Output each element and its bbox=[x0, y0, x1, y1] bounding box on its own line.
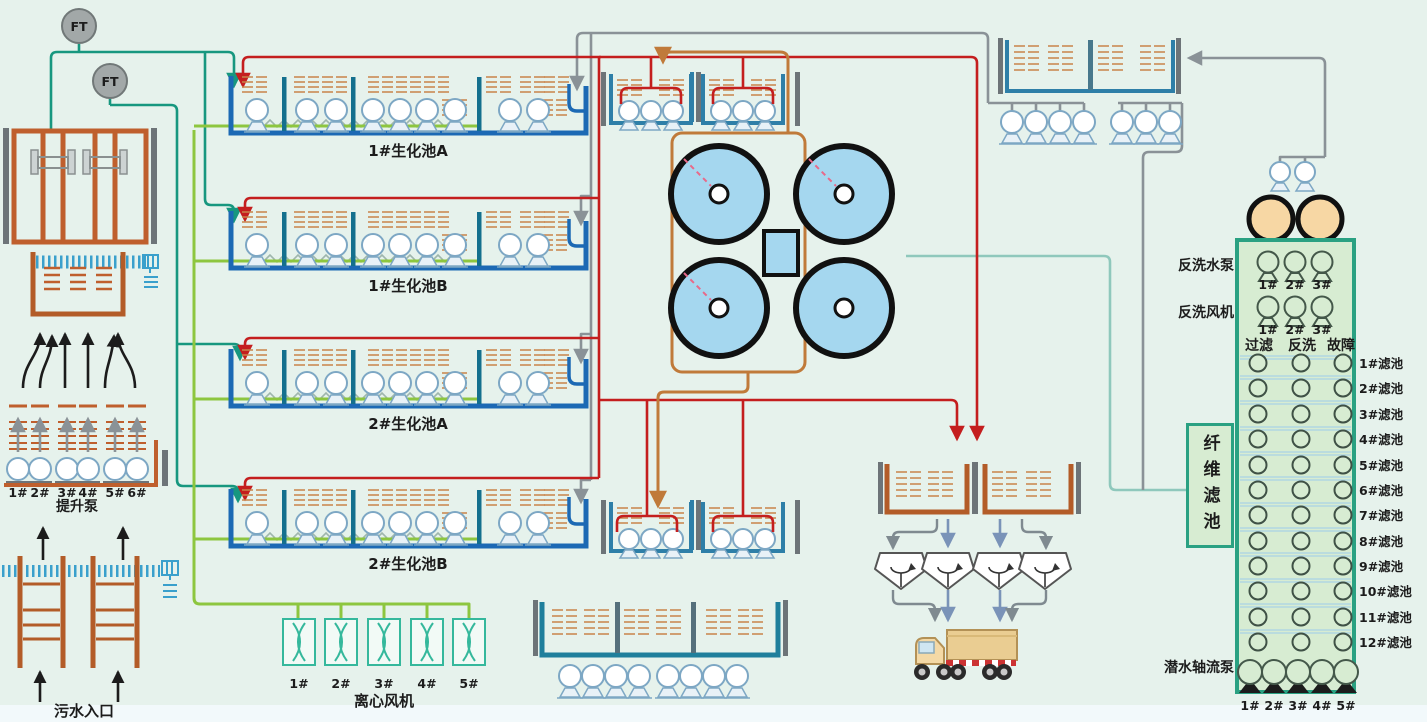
filter-status-light[interactable] bbox=[1293, 431, 1310, 448]
column-header-backwash: 反洗 bbox=[1288, 337, 1316, 354]
backwash-pumps-label: 反洗水泵 bbox=[1178, 257, 1234, 274]
ft-sensor-2-label: FT bbox=[101, 74, 119, 89]
filter-row-11-label: 11#滤池 bbox=[1359, 610, 1412, 625]
filter-status-light[interactable] bbox=[1250, 634, 1267, 651]
filter-status-light[interactable] bbox=[1250, 406, 1267, 423]
flow-arrows-up bbox=[23, 334, 135, 388]
screen-drive-2 bbox=[83, 150, 127, 174]
bio-tank-1b-label: 1#生化池B bbox=[368, 277, 447, 295]
filter-row-8-label: 8#滤池 bbox=[1359, 534, 1404, 549]
dewatering-hoppers[interactable] bbox=[875, 553, 1071, 589]
plant-diagram: FT FT bbox=[0, 0, 1427, 722]
filter-status-light[interactable] bbox=[1293, 355, 1310, 372]
axial-pump-2-label: 2# bbox=[1264, 698, 1283, 713]
ft-sensor-1-label: FT bbox=[70, 19, 88, 34]
bio-tank-1a[interactable] bbox=[194, 76, 586, 133]
filter-row-9 bbox=[1250, 558, 1352, 575]
blower-4[interactable] bbox=[411, 619, 443, 665]
lift-pump-5-label: 5# bbox=[105, 485, 124, 500]
blower-3[interactable] bbox=[368, 619, 400, 665]
filter-row-4-label: 4#滤池 bbox=[1359, 432, 1404, 447]
filter-status-light[interactable] bbox=[1250, 355, 1267, 372]
axial-pump-5-label: 5# bbox=[1336, 698, 1355, 713]
filter-row-5 bbox=[1250, 457, 1352, 474]
filter-row-12 bbox=[1250, 634, 1352, 651]
filter-status-light[interactable] bbox=[1335, 355, 1352, 372]
filter-row-10 bbox=[1250, 583, 1352, 600]
filter-row-11 bbox=[1250, 609, 1352, 626]
filter-status-light[interactable] bbox=[1335, 431, 1352, 448]
filter-status-light[interactable] bbox=[1335, 507, 1352, 524]
column-header-fault: 故障 bbox=[1327, 337, 1355, 354]
lift-pump-2-label: 2# bbox=[30, 485, 49, 500]
filter-status-light[interactable] bbox=[1250, 558, 1267, 575]
filter-row-6 bbox=[1250, 482, 1352, 499]
filter-row-1-label: 1#滤池 bbox=[1359, 356, 1404, 371]
axial-pump-3-label: 3# bbox=[1288, 698, 1307, 713]
filter-row-5-label: 5#滤池 bbox=[1359, 458, 1404, 473]
lift-pump-station-label: 提升泵 bbox=[56, 498, 98, 515]
distribution-wells-bottom bbox=[601, 500, 800, 558]
ft-sensor-2[interactable]: FT bbox=[93, 64, 127, 98]
filter-status-light[interactable] bbox=[1335, 634, 1352, 651]
blower-2[interactable] bbox=[325, 619, 357, 665]
filter-row-9-label: 9#滤池 bbox=[1359, 559, 1404, 574]
coarse-screen-structure bbox=[3, 128, 158, 388]
filter-row-3 bbox=[1250, 406, 1352, 423]
hopper-discharge-lines bbox=[893, 590, 1046, 620]
backwash-fan-3-label: 3# bbox=[1312, 322, 1331, 337]
filter-row-2 bbox=[1250, 380, 1352, 397]
backwash-pump-3-label: 3# bbox=[1312, 277, 1331, 292]
filter-status-light[interactable] bbox=[1250, 431, 1267, 448]
filter-status-light[interactable] bbox=[1293, 482, 1310, 499]
distribution-chamber bbox=[764, 231, 798, 275]
filter-status-light[interactable] bbox=[1335, 406, 1352, 423]
lift-pump-1-label: 1# bbox=[8, 485, 27, 500]
blower-5-label: 5# bbox=[459, 676, 478, 691]
filter-status-light[interactable] bbox=[1250, 583, 1267, 600]
filter-status-light[interactable] bbox=[1293, 457, 1310, 474]
blower-2-label: 2# bbox=[331, 676, 350, 691]
bio-tank-2b[interactable] bbox=[194, 489, 586, 546]
equalization-tank bbox=[533, 600, 788, 698]
blower-3-label: 3# bbox=[374, 676, 393, 691]
axial-pumps[interactable] bbox=[1238, 660, 1358, 693]
filter-row-6-label: 6#滤池 bbox=[1359, 483, 1404, 498]
filter-row-1 bbox=[1250, 355, 1352, 372]
lift-pump-3-label: 3# bbox=[57, 485, 76, 500]
blower-5[interactable] bbox=[453, 619, 485, 665]
axial-pump-4-label: 4# bbox=[1312, 698, 1331, 713]
backwash-fans-label: 反洗风机 bbox=[1178, 304, 1234, 321]
distribution-wells-top bbox=[601, 72, 800, 130]
bio-tank-1b[interactable] bbox=[194, 211, 586, 268]
filter-status-light[interactable] bbox=[1250, 380, 1267, 397]
filter-status-light[interactable] bbox=[1293, 406, 1310, 423]
filter-status-light[interactable] bbox=[1293, 583, 1310, 600]
lift-pump-station[interactable]: 1# 2# 3# 4# 5# 6# 提升泵 bbox=[4, 406, 168, 515]
filter-status-light[interactable] bbox=[1335, 558, 1352, 575]
clarifier-4[interactable] bbox=[796, 260, 892, 356]
filter-status-light[interactable] bbox=[1250, 609, 1267, 626]
blower-1-label: 1# bbox=[289, 676, 308, 691]
backwash-tank-1[interactable] bbox=[1249, 197, 1293, 241]
axial-pump-1-label: 1# bbox=[1240, 698, 1259, 713]
backwash-pump-2-label: 2# bbox=[1285, 277, 1304, 292]
backwash-supply bbox=[1249, 162, 1342, 241]
bottom-strip bbox=[0, 705, 1427, 722]
truck-window bbox=[919, 642, 934, 653]
inlet-screens: 污水入口 bbox=[2, 528, 178, 720]
filter-status-light[interactable] bbox=[1293, 507, 1310, 524]
bio-tank-2a[interactable] bbox=[194, 349, 586, 406]
clarifier-1[interactable] bbox=[671, 146, 767, 242]
filter-row-3-label: 3#滤池 bbox=[1359, 407, 1404, 422]
backwash-tank-2[interactable] bbox=[1298, 197, 1342, 241]
bio-tank-1a-label: 1#生化池A bbox=[368, 142, 448, 160]
blowers-label: 离心风机 bbox=[354, 692, 414, 710]
fiber-filter-label: 纤维滤池 bbox=[1186, 423, 1234, 548]
sludge-tanks bbox=[878, 441, 1081, 514]
sewage-inlet-label: 污水入口 bbox=[54, 702, 114, 720]
axial-pumps-label: 潜水轴流泵 bbox=[1164, 659, 1234, 676]
blower-4-label: 4# bbox=[417, 676, 436, 691]
filter-status-light[interactable] bbox=[1335, 583, 1352, 600]
filter-row-8 bbox=[1250, 533, 1352, 550]
filter-row-4 bbox=[1250, 431, 1352, 448]
filter-row-2-label: 2#滤池 bbox=[1359, 381, 1404, 396]
filter-status-light[interactable] bbox=[1335, 609, 1352, 626]
hopper-feed-lines bbox=[893, 519, 1046, 548]
equalization-tank-pumps[interactable] bbox=[557, 665, 750, 698]
column-header-filter: 过滤 bbox=[1245, 337, 1273, 354]
filter-status-light[interactable] bbox=[1293, 533, 1310, 550]
bio-tank-2a-label: 2#生化池A bbox=[368, 415, 448, 433]
filter-status-light[interactable] bbox=[1250, 482, 1267, 499]
ft-sensor-1[interactable]: FT bbox=[62, 9, 96, 43]
contact-tank-pumps[interactable] bbox=[999, 111, 1183, 144]
centrifugal-blowers: 1# 2# 3# 4# 5# 离心风机 bbox=[283, 619, 485, 710]
blower-1[interactable] bbox=[283, 619, 315, 665]
lift-pump-4-label: 4# bbox=[78, 485, 97, 500]
filter-status-light[interactable] bbox=[1335, 457, 1352, 474]
backwash-pump-1-label: 1# bbox=[1258, 277, 1277, 292]
filter-status-light[interactable] bbox=[1250, 533, 1267, 550]
filter-status-light[interactable] bbox=[1250, 457, 1267, 474]
filter-row-7 bbox=[1250, 507, 1352, 524]
filter-status-light[interactable] bbox=[1293, 609, 1310, 626]
plant-overview-screen: FT FT bbox=[0, 0, 1427, 722]
filter-status-light[interactable] bbox=[1335, 482, 1352, 499]
filter-row-labels: 1#滤池 2#滤池 3#滤池 4#滤池 5#滤池 6#滤池 7#滤池 8#滤池 … bbox=[1359, 356, 1412, 650]
backwash-fan-2-label: 2# bbox=[1285, 322, 1304, 337]
clarifier-3[interactable] bbox=[671, 260, 767, 356]
filter-status-light[interactable] bbox=[1250, 507, 1267, 524]
filter-status-light[interactable] bbox=[1293, 634, 1310, 651]
clarifier-2[interactable] bbox=[796, 146, 892, 242]
bio-tank-2b-label: 2#生化池B bbox=[368, 555, 447, 573]
filter-status-light[interactable] bbox=[1335, 380, 1352, 397]
backwash-fans[interactable]: 1# 2# 3# bbox=[1258, 297, 1333, 338]
sludge-truck bbox=[914, 630, 1017, 680]
backwash-pumps[interactable]: 1# 2# 3# bbox=[1258, 252, 1333, 293]
filter-status-light[interactable] bbox=[1293, 558, 1310, 575]
filter-status-light[interactable] bbox=[1335, 533, 1352, 550]
filter-row-12-label: 12#滤池 bbox=[1359, 635, 1412, 650]
filter-row-10-label: 10#滤池 bbox=[1359, 584, 1412, 599]
filter-status-light[interactable] bbox=[1293, 380, 1310, 397]
backwash-fan-1-label: 1# bbox=[1258, 322, 1277, 337]
lift-pump-6-label: 6# bbox=[127, 485, 146, 500]
filter-row-7-label: 7#滤池 bbox=[1359, 508, 1404, 523]
clarifier-group bbox=[671, 146, 892, 356]
screen-drive-1 bbox=[31, 150, 75, 174]
contact-tank bbox=[998, 38, 1181, 94]
